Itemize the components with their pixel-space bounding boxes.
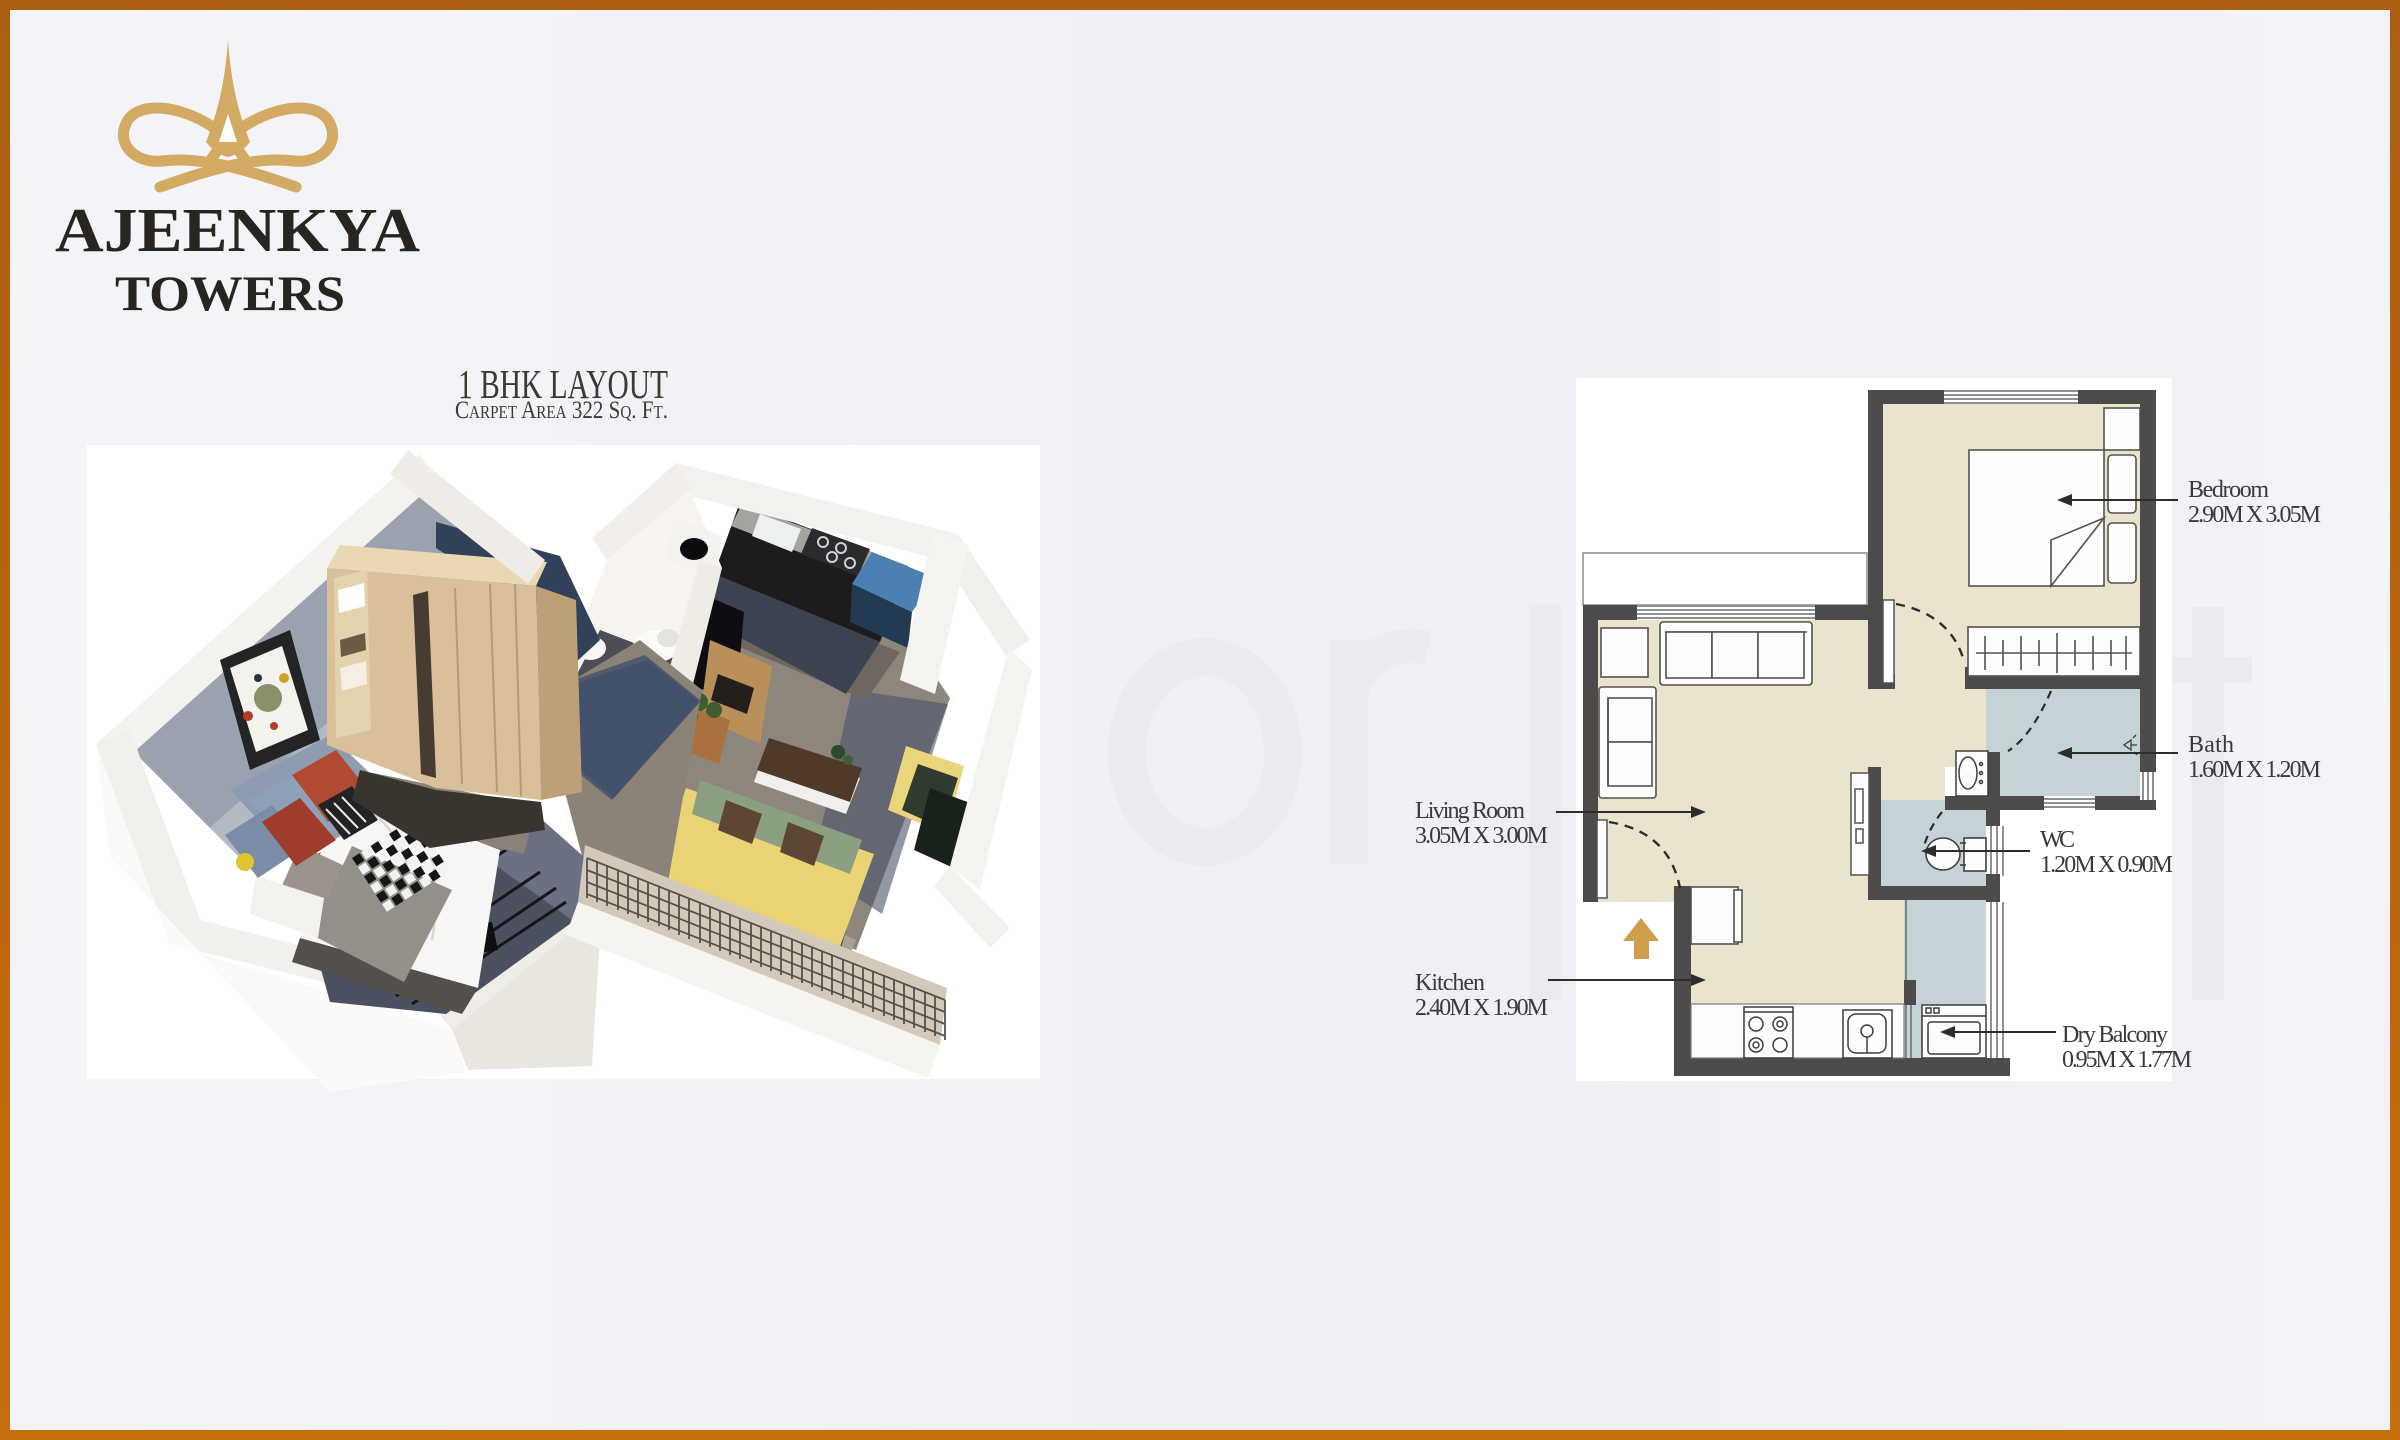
svg-text:WC: WC (2040, 827, 2075, 853)
svg-text:Bedroom: Bedroom (2188, 477, 2269, 503)
svg-text:1.60M X 1.20M: 1.60M X 1.20M (2188, 757, 2321, 783)
svg-text:Kitchen: Kitchen (1415, 970, 1485, 996)
svg-text:2.90M X 3.05M: 2.90M X 3.05M (2188, 502, 2321, 528)
svg-text:2.40M X 1.90M: 2.40M X 1.90M (1415, 995, 1548, 1021)
svg-text:3.05M X 3.00M: 3.05M X 3.00M (1415, 823, 1548, 849)
svg-text:Living Room: Living Room (1415, 798, 1525, 824)
svg-text:0.95M X 1.77M: 0.95M X 1.77M (2062, 1047, 2192, 1073)
svg-text:Carpet Area 322 Sq. Ft.: Carpet Area 322 Sq. Ft. (455, 397, 668, 424)
svg-text:Bath: Bath (2188, 732, 2234, 758)
svg-text:Dry Balcony: Dry Balcony (2062, 1022, 2168, 1048)
svg-text:AJEENKYA: AJEENKYA (55, 197, 420, 265)
svg-text:TOWERS: TOWERS (115, 265, 345, 321)
svg-text:1.20M X 0.90M: 1.20M X 0.90M (2040, 852, 2173, 878)
